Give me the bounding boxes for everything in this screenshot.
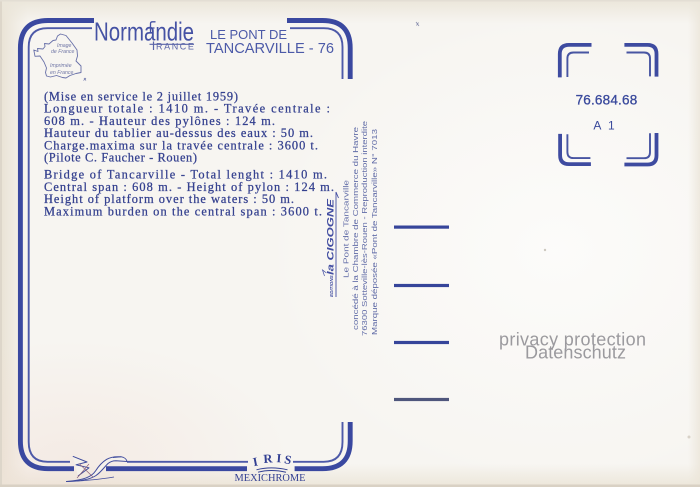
svg-text:Datenschutz: Datenschutz	[525, 343, 626, 363]
svg-text:concédé à la Chambre de Commer: concédé à la Chambre de Commerce du Havr…	[351, 127, 360, 330]
svg-text:EDITIONS: EDITIONS	[329, 274, 334, 297]
svg-text:TANCARVILLE - 76: TANCARVILLE - 76	[206, 40, 334, 57]
svg-text:76300 Sotteville-lès-Rouen - R: 76300 Sotteville-lès-Rouen - Reproductio…	[360, 121, 369, 336]
svg-text:MEXICHROME: MEXICHROME	[235, 473, 306, 484]
svg-text:Maximum burden on the central: Maximum burden on the central span : 360…	[44, 205, 322, 219]
svg-text:en France: en France	[50, 70, 73, 76]
svg-text:Imprimée: Imprimée	[50, 63, 72, 69]
svg-text:la CIGOGNE: la CIGOGNE	[326, 198, 337, 275]
svg-text:Le Pont de Tancarville: Le Pont de Tancarville	[342, 180, 351, 278]
svg-text:76.684.68: 76.684.68	[576, 93, 638, 108]
svg-text:RANCE: RANCE	[156, 42, 196, 52]
svg-text:A 1: A 1	[593, 119, 616, 133]
svg-text:(Pilote C. Faucher - Rouen): (Pilote C. Faucher - Rouen)	[44, 151, 197, 165]
svg-text:de France: de France	[51, 49, 74, 55]
svg-text:Marque déposée «Pont de Tancar: Marque déposée «Pont de Tancarville» N° …	[370, 129, 379, 335]
